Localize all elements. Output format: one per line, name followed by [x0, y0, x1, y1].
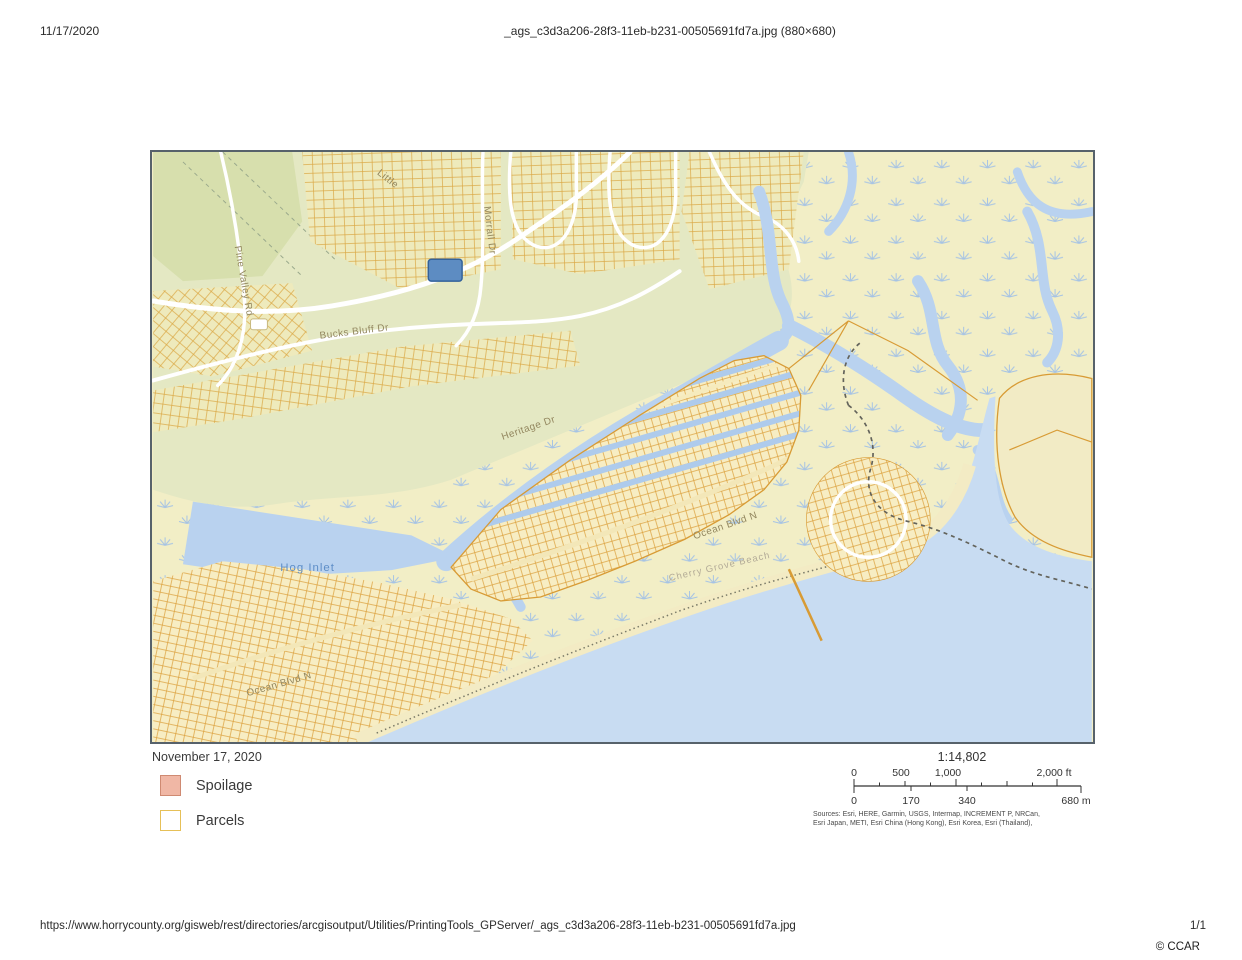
header-filename: _ags_c3d3a206-28f3-11eb-b231-00505691fd7…: [0, 24, 1242, 38]
parcels-label: Parcels: [196, 813, 244, 829]
map-label-hog-inlet: Hog Inlet: [280, 562, 335, 574]
scale-ratio: 1:14,802: [938, 750, 987, 764]
scalebar: 1:14,802 0 500 1,000 2,000 ft 0 170 340 …: [840, 748, 1100, 815]
sources-line1: Sources: Esri, HERE, Garmin, USGS, Inter…: [813, 811, 1040, 818]
highlighted-parcel: [428, 259, 462, 281]
scale-ft-500: 500: [892, 767, 910, 779]
footer-page-indicator: 1/1: [1190, 920, 1206, 932]
legend-item-parcels: Parcels: [160, 810, 252, 831]
parcels-swatch: [160, 810, 181, 831]
spoilage-label: Spoilage: [196, 778, 252, 794]
sources-line2: Esri Japan, METI, Esri China (Hong Kong)…: [813, 820, 1032, 827]
legend-item-spoilage: Spoilage: [160, 775, 252, 796]
route-shield: [251, 319, 268, 330]
sources-attribution: Sources: Esri, HERE, Garmin, USGS, Inter…: [813, 810, 1113, 828]
scale-m-170: 170: [902, 795, 920, 807]
footer-copyright: © CCAR: [1156, 941, 1200, 953]
scale-m-340: 340: [958, 795, 976, 807]
scale-m-680: 680 m: [1061, 795, 1090, 807]
scale-ft-0: 0: [851, 767, 857, 779]
map-canvas: Bucks Bluff Dr Pine Valley Rd Little Mor…: [152, 152, 1093, 742]
map-image: Bucks Bluff Dr Pine Valley Rd Little Mor…: [150, 150, 1095, 744]
spoilage-swatch: [160, 775, 181, 796]
legend: Spoilage Parcels: [160, 775, 252, 845]
map-date-label: November 17, 2020: [152, 750, 262, 764]
scale-ft-2000: 2,000 ft: [1036, 767, 1071, 779]
scale-ft-1000: 1,000: [935, 767, 961, 779]
print-preview-page: 11/17/2020 _ags_c3d3a206-28f3-11eb-b231-…: [0, 0, 1242, 960]
scale-ticks: [854, 779, 1081, 793]
footer-url: https://www.horrycounty.org/gisweb/rest/…: [40, 920, 796, 932]
scale-m-0: 0: [851, 795, 857, 807]
